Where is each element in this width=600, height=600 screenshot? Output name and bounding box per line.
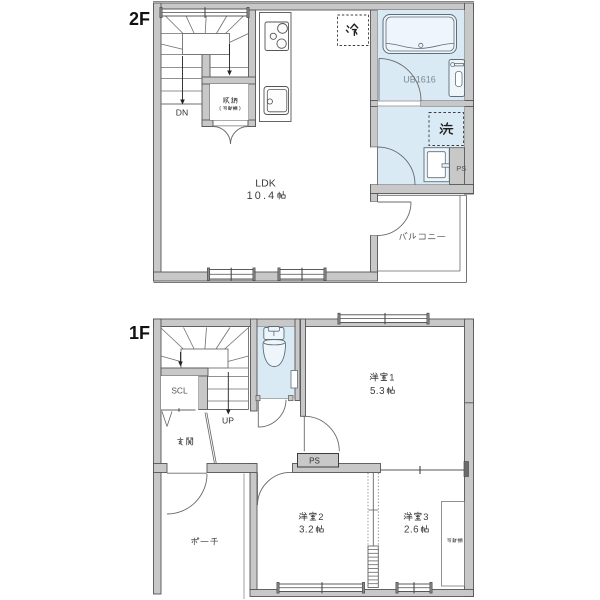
svg-text:UB1616: UB1616 (403, 74, 436, 84)
svg-text:PS: PS (456, 164, 466, 173)
svg-text:10.4: 10.4 (247, 190, 277, 202)
svg-text:LDK: LDK (255, 178, 275, 190)
svg-text:1: 1 (389, 371, 394, 382)
svg-text:SCL: SCL (171, 385, 188, 395)
svg-text:1F: 1F (129, 323, 150, 343)
svg-text:UP: UP (222, 415, 234, 425)
svg-text:3.2: 3.2 (299, 525, 314, 536)
svg-text:2.6: 2.6 (404, 525, 419, 536)
svg-text:2: 2 (318, 511, 323, 522)
svg-text:5.3: 5.3 (370, 386, 385, 397)
svg-text:3: 3 (423, 511, 428, 522)
svg-text:DN: DN (176, 108, 188, 118)
svg-text:PS: PS (309, 457, 320, 466)
svg-text:2F: 2F (129, 9, 150, 29)
